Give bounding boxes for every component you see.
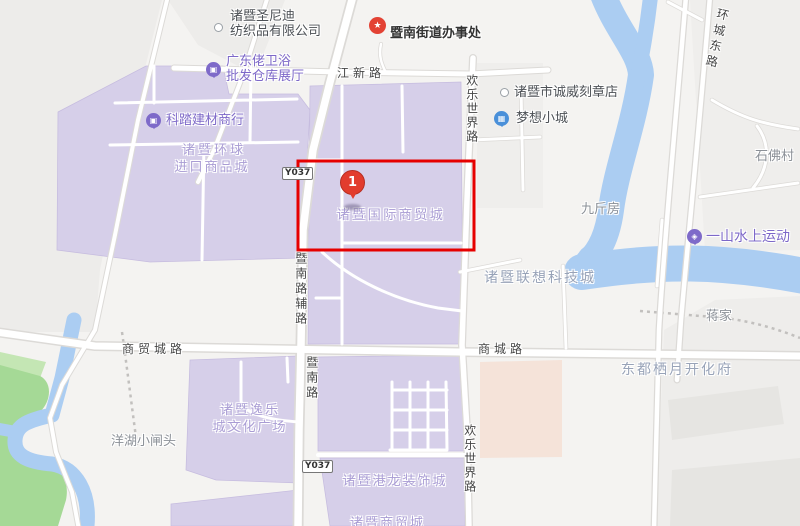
red-pin-icon[interactable]: ★ [369,17,386,34]
salmon-block [480,360,562,458]
poi-label-jiujinfang: 九斤房 [581,203,620,218]
marker-pin-1[interactable]: 1 [340,170,365,195]
town-pin-icon-dreamtown[interactable]: ▦ [494,111,509,126]
area-label-yile-line1: 诸暨逸乐 [220,404,280,419]
sports-icon: ◈ [691,232,697,241]
road-label-huanle-world-bottom: 欢乐世界路 [462,424,476,494]
poi-label-shengnidi[interactable]: 诸暨圣尼迪 纺织品有限公司 [230,10,321,40]
shop-icon: ▣ [150,116,158,125]
building-icon: ▦ [498,114,506,123]
area-label-yile-line2: 城文化广场 [212,421,287,436]
area-label-dongdu-qiyue: 东都栖月开化府 [621,362,733,378]
poi-label-chengwei[interactable]: 诸暨市诚威刻章店 [514,86,618,101]
road-label-shangcheng: 商城路 [478,343,526,357]
poi-label-yishan[interactable]: 一山水上运动 [706,229,790,245]
area-label-bottom-clipped: 诸暨商贸城 [350,517,425,526]
road-label-jinan: 暨南路 [304,356,318,401]
sports-pin-icon-yishan[interactable]: ◈ [687,229,702,244]
shop-pin-icon-keta[interactable]: ▣ [146,113,161,128]
poi-dot-shengnidi[interactable] [214,23,223,32]
poi-dot-chengwei[interactable] [500,88,509,97]
area-label-ganglong: 诸暨港龙装饰城 [342,475,447,490]
poi-label-dream-town[interactable]: 梦想小城 [516,112,568,127]
area-label-global-line2: 进口商品城 [174,161,249,176]
road-label-huanle-world-top: 欢乐世界路 [464,74,478,144]
area-label-intl-trade-city: 诸暨国际商贸城 [337,209,446,224]
road-label-jiangxin: 江新路 [337,67,385,81]
shop-icon: ▣ [210,65,218,74]
poi-label-guangdonglao[interactable]: 广东佬卫浴 批发仓库展厅 [226,55,304,85]
poi-label-yanghu: 洋湖小闸头 [111,435,176,450]
poi-label-shifo-village: 石佛村 [755,150,794,165]
area-label-global-line1: 诸暨环球 [182,144,246,159]
map-canvas[interactable]: 江新路 环城东路 欢乐世界路 欢乐世界路 暨南路辅路 暨南路 商贸城路 商城路 … [0,0,800,526]
road-label-shangmaocheng: 商贸城路 [122,343,186,357]
marker-shadow [344,204,361,210]
area-label-lianxiang-tech: 诸暨联想科技城 [484,270,596,286]
road-badge-y037-top: Y037 [282,167,313,180]
road-badge-y037-bottom: Y037 [302,460,333,473]
poi-label-jinan-office[interactable]: 暨南街道办事处 [390,27,481,42]
poi-label-jiangjia: 蒋家 [706,310,732,325]
poi-label-keta[interactable]: 科踏建材商行 [166,114,244,129]
shop-pin-icon-guangdonglao[interactable]: ▣ [206,62,221,77]
star-icon: ★ [373,21,381,31]
road-label-jinan-aux: 暨南路辅路 [293,252,307,327]
